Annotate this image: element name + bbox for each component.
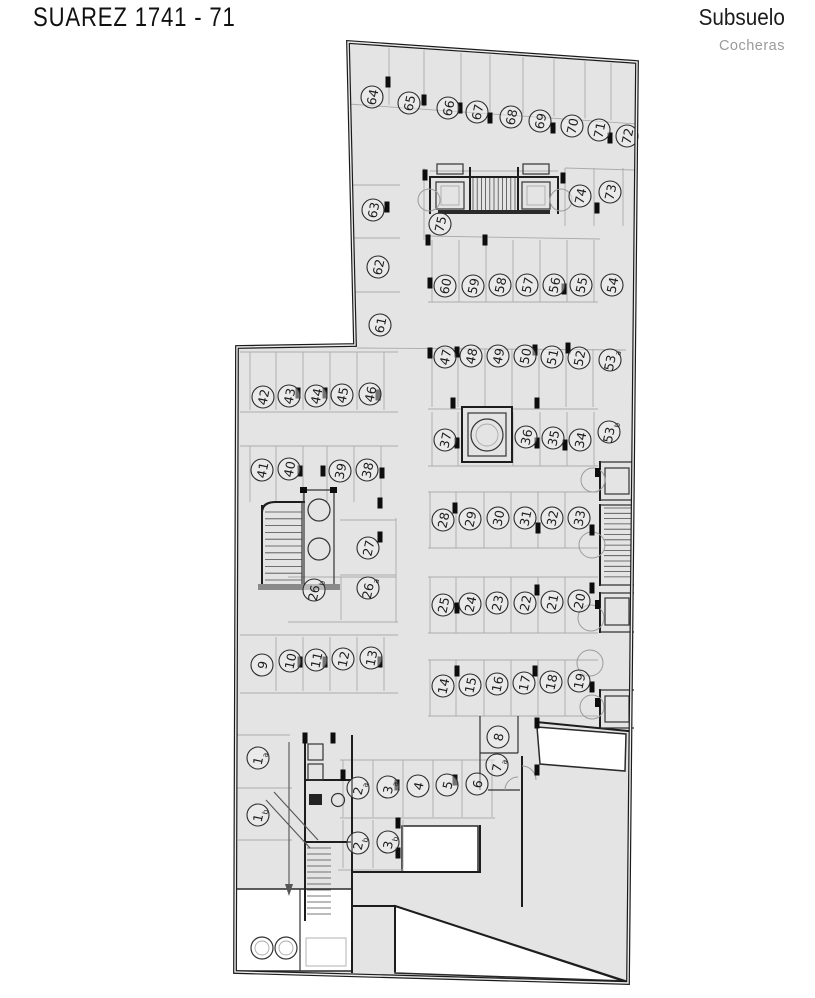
parking-spot-10: 10 xyxy=(279,650,301,672)
floor-plan: 6465666768697071727374756362616059585756… xyxy=(0,0,815,998)
parking-spot-31: 31 xyxy=(514,507,536,529)
parking-spot-20: 20 xyxy=(568,590,590,612)
parking-spot-14: 14 xyxy=(432,675,454,697)
parking-spot-36: 36 xyxy=(515,426,537,448)
column-marker xyxy=(533,666,538,677)
parking-spot-1b: 1b xyxy=(247,804,270,826)
parking-spot-35: 35 xyxy=(542,427,564,449)
column-marker xyxy=(483,235,488,246)
parking-spot-15: 15 xyxy=(459,674,481,696)
parking-spot-57: 57 xyxy=(516,274,538,296)
parking-spot-47: 47 xyxy=(434,346,456,368)
column-marker xyxy=(595,203,600,214)
parking-spot-40: 40 xyxy=(278,458,300,480)
parking-spot-51: 51 xyxy=(541,346,563,368)
column-marker xyxy=(386,77,391,88)
parking-spot-27: 27 xyxy=(357,537,379,559)
parking-spot-46: 46 xyxy=(359,383,381,405)
column-marker xyxy=(396,818,401,829)
parking-spot-56: 56 xyxy=(543,274,565,296)
parking-spot-1a: 1a xyxy=(247,747,270,769)
parking-spot-19: 19 xyxy=(568,670,590,692)
column-marker xyxy=(561,173,566,184)
parking-spot-66: 66 xyxy=(437,97,459,119)
parking-spot-48: 48 xyxy=(460,345,482,367)
parking-spot-74: 74 xyxy=(569,185,591,207)
parking-spot-52: 52 xyxy=(568,347,590,369)
parking-spot-29: 29 xyxy=(459,508,481,530)
parking-spot-2a: 2a xyxy=(347,777,370,799)
parking-spot-43: 43 xyxy=(278,385,300,407)
column-marker xyxy=(451,398,456,409)
parking-spot-3a: 3a xyxy=(377,776,400,798)
column-marker xyxy=(385,202,390,213)
column-marker xyxy=(535,585,540,596)
parking-spot-55: 55 xyxy=(570,274,592,296)
parking-spot-12: 12 xyxy=(332,648,354,670)
parking-spot-68: 68 xyxy=(500,106,522,128)
parking-spot-61: 61 xyxy=(369,314,391,336)
parking-spot-21: 21 xyxy=(541,591,563,613)
column-marker xyxy=(380,468,385,479)
parking-spot-30: 30 xyxy=(487,507,509,529)
parking-spot-69: 69 xyxy=(529,110,551,132)
column-marker xyxy=(590,583,595,594)
parking-spot-41: 41 xyxy=(251,459,273,481)
parking-spot-8: 8 xyxy=(487,726,509,748)
parking-spot-17: 17 xyxy=(513,672,535,694)
parking-spot-67: 67 xyxy=(466,101,488,123)
column-marker xyxy=(321,466,326,477)
machine-room xyxy=(402,826,478,872)
parking-spot-62: 62 xyxy=(367,256,389,278)
column-marker xyxy=(422,95,427,106)
parking-spot-13: 13 xyxy=(360,647,382,669)
column-marker xyxy=(428,348,433,359)
parking-spot-23: 23 xyxy=(486,592,508,614)
parking-spot-45: 45 xyxy=(331,384,353,406)
parking-spot-25: 25 xyxy=(432,594,454,616)
column-marker xyxy=(426,235,431,246)
parking-spot-54: 54 xyxy=(601,274,623,296)
column-marker xyxy=(378,532,383,543)
bottom-right-room xyxy=(537,727,626,771)
column-marker xyxy=(423,170,428,181)
column-marker xyxy=(535,398,540,409)
parking-spot-2b: 2b xyxy=(347,832,370,854)
parking-spot-11: 11 xyxy=(305,649,327,671)
parking-spot-4: 4 xyxy=(407,775,429,797)
parking-spot-75: 75 xyxy=(429,213,451,235)
parking-spot-37: 37 xyxy=(434,429,456,451)
parking-spot-16: 16 xyxy=(486,673,508,695)
parking-spot-63: 63 xyxy=(362,199,384,221)
column-marker xyxy=(453,503,458,514)
parking-spot-33: 33 xyxy=(568,507,590,529)
column-marker xyxy=(535,718,540,729)
parking-spot-39: 39 xyxy=(329,460,351,482)
parking-spot-60: 60 xyxy=(434,275,456,297)
column-marker xyxy=(590,525,595,536)
parking-spot-64: 64 xyxy=(361,86,383,108)
toilet xyxy=(309,794,322,805)
parking-spot-28: 28 xyxy=(432,509,454,531)
tank-room xyxy=(236,889,352,971)
column-marker xyxy=(428,278,433,289)
parking-spot-44: 44 xyxy=(305,385,327,407)
column-marker xyxy=(331,733,336,744)
parking-spot-38: 38 xyxy=(356,459,378,481)
parking-spot-42: 42 xyxy=(252,386,274,408)
parking-spot-7a: 7a xyxy=(486,754,509,776)
parking-spot-50: 50 xyxy=(514,345,536,367)
parking-spot-5: 5 xyxy=(436,774,458,796)
column-marker xyxy=(551,123,556,134)
column-marker xyxy=(303,733,308,744)
column-marker xyxy=(341,770,346,781)
column-marker xyxy=(536,523,541,534)
parking-spot-59: 59 xyxy=(462,275,484,297)
parking-spot-49: 49 xyxy=(487,345,509,367)
column-marker xyxy=(535,765,540,776)
parking-spot-6: 6 xyxy=(466,773,488,795)
column-marker xyxy=(378,498,383,509)
parking-spot-18: 18 xyxy=(540,671,562,693)
parking-spot-3b: 3b xyxy=(377,831,400,853)
parking-spot-24: 24 xyxy=(459,593,481,615)
column-marker xyxy=(455,666,460,677)
parking-spot-70: 70 xyxy=(561,115,583,137)
parking-spot-9: 9 xyxy=(251,654,273,676)
parking-spot-22: 22 xyxy=(514,592,536,614)
parking-spot-65: 65 xyxy=(398,92,420,114)
parking-spot-34: 34 xyxy=(569,429,591,451)
parking-spot-71: 71 xyxy=(588,119,610,141)
parking-spot-58: 58 xyxy=(489,274,511,296)
parking-spot-32: 32 xyxy=(541,507,563,529)
parking-spot-73: 73 xyxy=(599,181,621,203)
